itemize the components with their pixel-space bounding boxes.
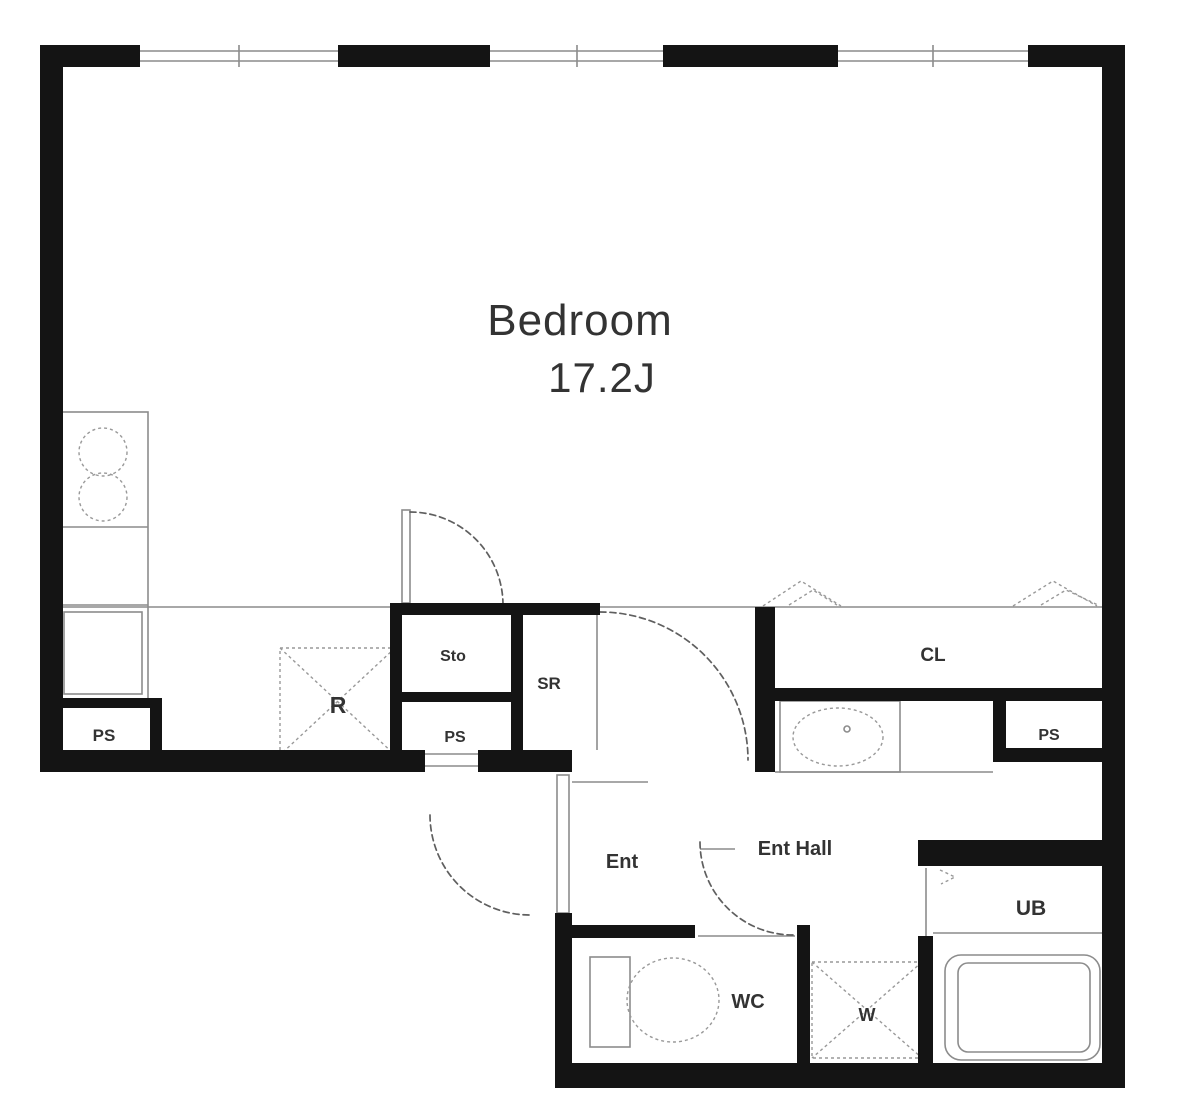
entrance-hall-label: Ent Hall	[758, 838, 832, 860]
entrance-door-arc	[430, 815, 530, 915]
ub-top-wall	[918, 840, 1125, 866]
ps-mid-label: PS	[444, 729, 466, 746]
wall-bottom-main	[40, 750, 425, 772]
refrigerator-label: R	[330, 692, 347, 718]
closet-bottom-wall	[775, 688, 1102, 701]
hall-closet-wall	[755, 607, 775, 772]
ps-left-wall	[45, 698, 162, 708]
window-top-1	[140, 45, 338, 67]
stove-burners	[79, 428, 127, 521]
storage-walls	[390, 603, 600, 615]
hall-door-arc	[600, 612, 748, 760]
bottom-wall-opening	[425, 754, 478, 766]
ps-right-label: PS	[1038, 727, 1060, 744]
washer-label: W	[859, 1005, 876, 1025]
windows	[140, 45, 1028, 766]
window-top-2	[490, 45, 663, 67]
window-top-3	[838, 45, 1028, 67]
vanity-faucet	[844, 726, 850, 732]
labels: Bedroom 17.2J PS R Sto PS SR CL PS Ent E…	[93, 296, 1060, 1025]
storage-label: Sto	[440, 648, 466, 665]
kitchen-sink	[64, 612, 142, 694]
toilet-label: WC	[731, 991, 764, 1013]
bedroom-size-label: 17.2J	[548, 354, 656, 401]
ub-door-swing-mark	[940, 870, 955, 884]
closet-label: CL	[920, 645, 946, 666]
closet-door-chevrons	[763, 581, 1098, 606]
wc-left-wall	[555, 913, 572, 1088]
bedroom-door-arc	[410, 512, 503, 605]
ps-left-label: PS	[93, 726, 116, 745]
wall-right	[1102, 45, 1125, 1088]
fixture-outlines	[79, 428, 1098, 1058]
unit-bath-label: UB	[1016, 897, 1046, 920]
wc-top-wall	[572, 925, 695, 938]
walls	[40, 45, 1125, 1088]
bathtub	[945, 955, 1100, 1060]
vanity-basin	[793, 708, 883, 766]
toilet-tank	[590, 957, 630, 1047]
service-room-label: SR	[537, 674, 561, 693]
kitchen-counter	[57, 412, 148, 700]
bedroom-door-leaf	[402, 510, 410, 603]
wall-bottom-outer	[555, 1063, 1125, 1088]
bedroom-name-label: Bedroom	[487, 296, 673, 345]
door-swing-arcs	[410, 512, 793, 935]
wall-left	[40, 45, 63, 772]
partition-lines	[57, 412, 1102, 1060]
entrance-door-leaf	[557, 775, 569, 913]
toilet-bowl	[627, 958, 719, 1042]
floor-plan: Bedroom 17.2J PS R Sto PS SR CL PS Ent E…	[0, 0, 1192, 1116]
entrance-label: Ent	[606, 851, 639, 873]
vanity-counter	[780, 701, 900, 772]
